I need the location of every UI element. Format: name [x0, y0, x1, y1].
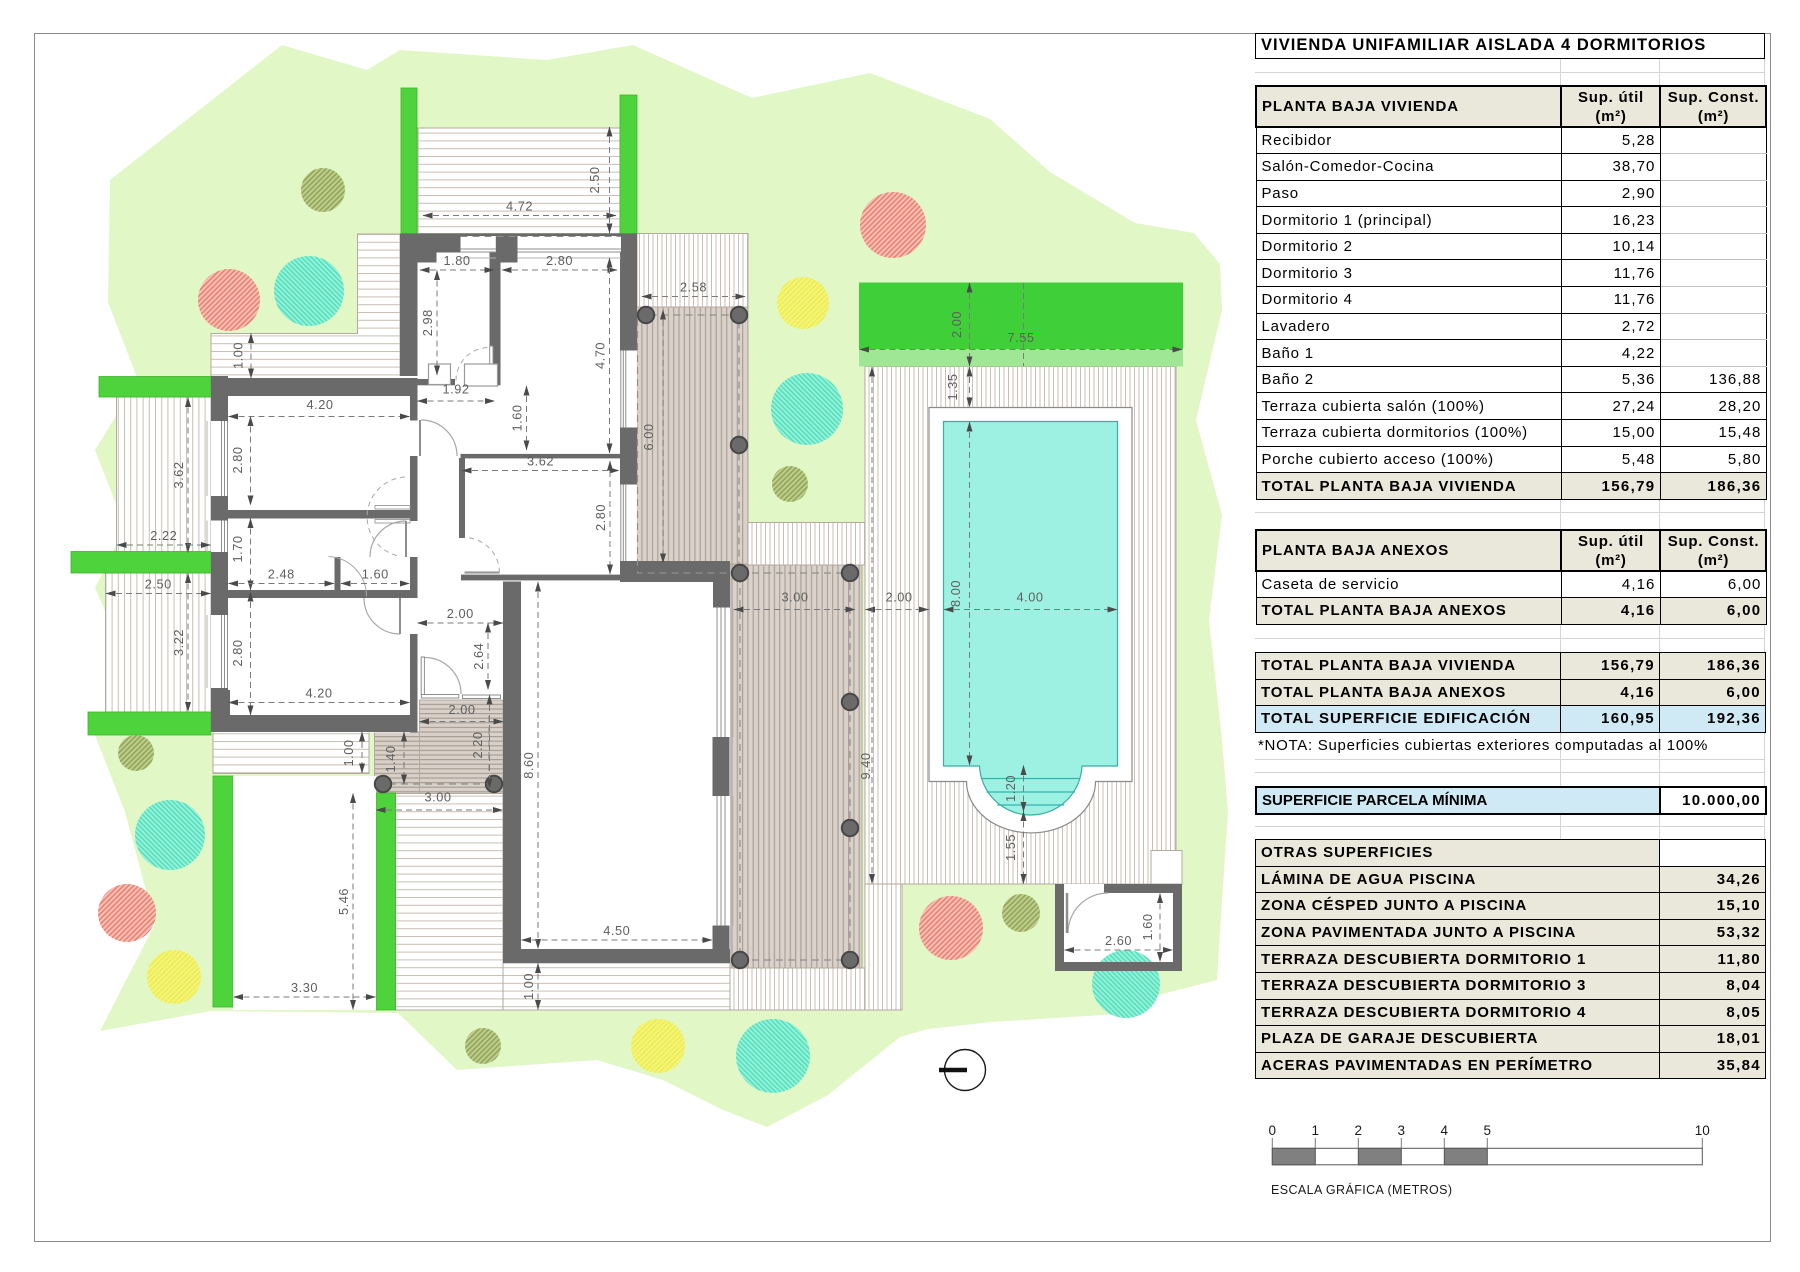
svg-text:4: 4	[1441, 1123, 1449, 1138]
svg-text:1: 1	[1312, 1123, 1320, 1138]
svg-text:ESCALA GRÁFICA (METROS): ESCALA GRÁFICA (METROS)	[1271, 1182, 1452, 1197]
svg-text:0: 0	[1269, 1123, 1277, 1138]
svg-text:2: 2	[1355, 1123, 1363, 1138]
svg-text:10: 10	[1695, 1123, 1710, 1138]
svg-text:5: 5	[1484, 1123, 1492, 1138]
svg-text:3: 3	[1398, 1123, 1406, 1138]
